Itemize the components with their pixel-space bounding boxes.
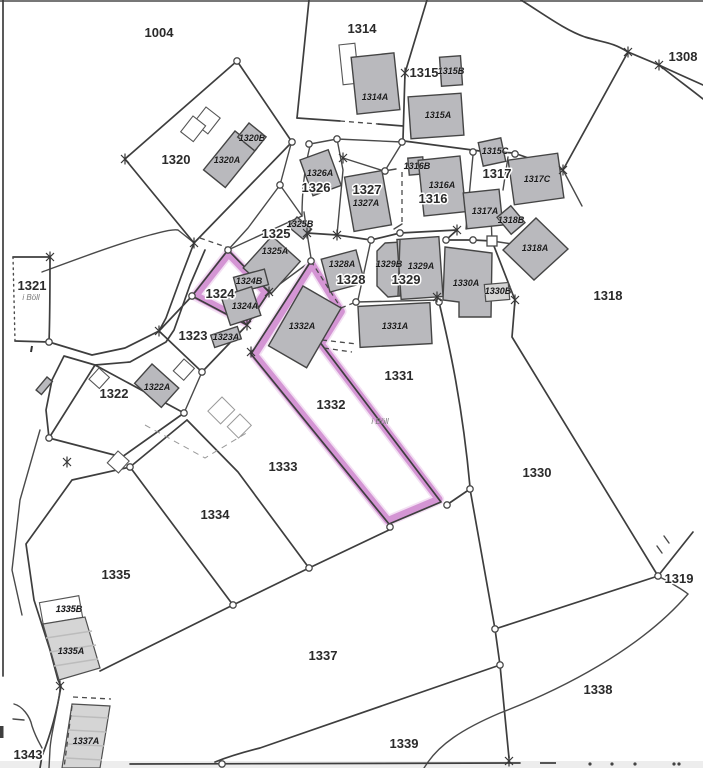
svg-text:1327A: 1327A [353, 198, 380, 208]
svg-text:1317C: 1317C [524, 174, 551, 184]
svg-text:1329A: 1329A [408, 261, 435, 271]
svg-text:1316B: 1316B [404, 161, 431, 171]
svg-text:1315: 1315 [410, 65, 439, 80]
svg-text:1330B: 1330B [485, 286, 512, 296]
svg-text:1335B: 1335B [56, 604, 83, 614]
svg-text:1325B: 1325B [287, 219, 314, 229]
svg-text:1322: 1322 [100, 386, 129, 401]
svg-text:1327: 1327 [353, 182, 382, 197]
svg-text:1314: 1314 [348, 21, 378, 36]
svg-text:1317: 1317 [483, 166, 512, 181]
svg-text:1329B: 1329B [376, 259, 403, 269]
svg-text:1338: 1338 [584, 682, 613, 697]
svg-text:1315C: 1315C [482, 146, 509, 156]
svg-text:1323A: 1323A [213, 332, 240, 342]
svg-text:1318: 1318 [594, 288, 623, 303]
svg-text:1316A: 1316A [429, 180, 456, 190]
svg-text:1315B: 1315B [438, 66, 465, 76]
svg-text:1329: 1329 [392, 272, 421, 287]
svg-text:1335A: 1335A [58, 646, 85, 656]
svg-text:1324A: 1324A [232, 301, 259, 311]
svg-text:1320B: 1320B [239, 133, 266, 143]
svg-text:1343: 1343 [14, 747, 43, 762]
svg-text:1332: 1332 [317, 397, 346, 412]
svg-text:1331A: 1331A [382, 321, 409, 331]
svg-text:1326A: 1326A [307, 168, 334, 178]
svg-text:1334: 1334 [201, 507, 231, 522]
svg-text:1324B: 1324B [236, 276, 263, 286]
svg-text:1333: 1333 [269, 459, 298, 474]
svg-text:1314A: 1314A [362, 92, 389, 102]
svg-text:1322A: 1322A [144, 382, 171, 392]
svg-text:1319: 1319 [665, 571, 694, 586]
svg-text:1337: 1337 [309, 648, 338, 663]
svg-text:1339: 1339 [390, 736, 419, 751]
svg-text:1330A: 1330A [453, 278, 480, 288]
svg-text:1320A: 1320A [214, 155, 241, 165]
svg-text:1337A: 1337A [73, 736, 100, 746]
svg-text:1325A: 1325A [262, 246, 289, 256]
svg-text:1326: 1326 [302, 180, 331, 195]
svg-text:1328: 1328 [337, 272, 366, 287]
svg-text:1318A: 1318A [522, 243, 549, 253]
svg-text:1004: 1004 [145, 25, 175, 40]
svg-text:1315A: 1315A [425, 110, 452, 120]
svg-text:i Böll: i Böll [371, 417, 389, 426]
svg-text:1324: 1324 [206, 286, 236, 301]
svg-text:1316: 1316 [419, 191, 448, 206]
svg-text:1332A: 1332A [289, 321, 316, 331]
svg-text:1308: 1308 [669, 49, 698, 64]
svg-text:1323: 1323 [179, 328, 208, 343]
svg-text:1330: 1330 [523, 465, 552, 480]
svg-text:1331: 1331 [385, 368, 414, 383]
svg-text:1318B: 1318B [498, 215, 525, 225]
svg-text:1317A: 1317A [472, 206, 499, 216]
svg-text:1321: 1321 [18, 278, 47, 293]
svg-text:i Böll: i Böll [22, 293, 40, 302]
svg-text:1320: 1320 [162, 152, 191, 167]
svg-text:1335: 1335 [102, 567, 131, 582]
svg-text:1328A: 1328A [329, 259, 356, 269]
